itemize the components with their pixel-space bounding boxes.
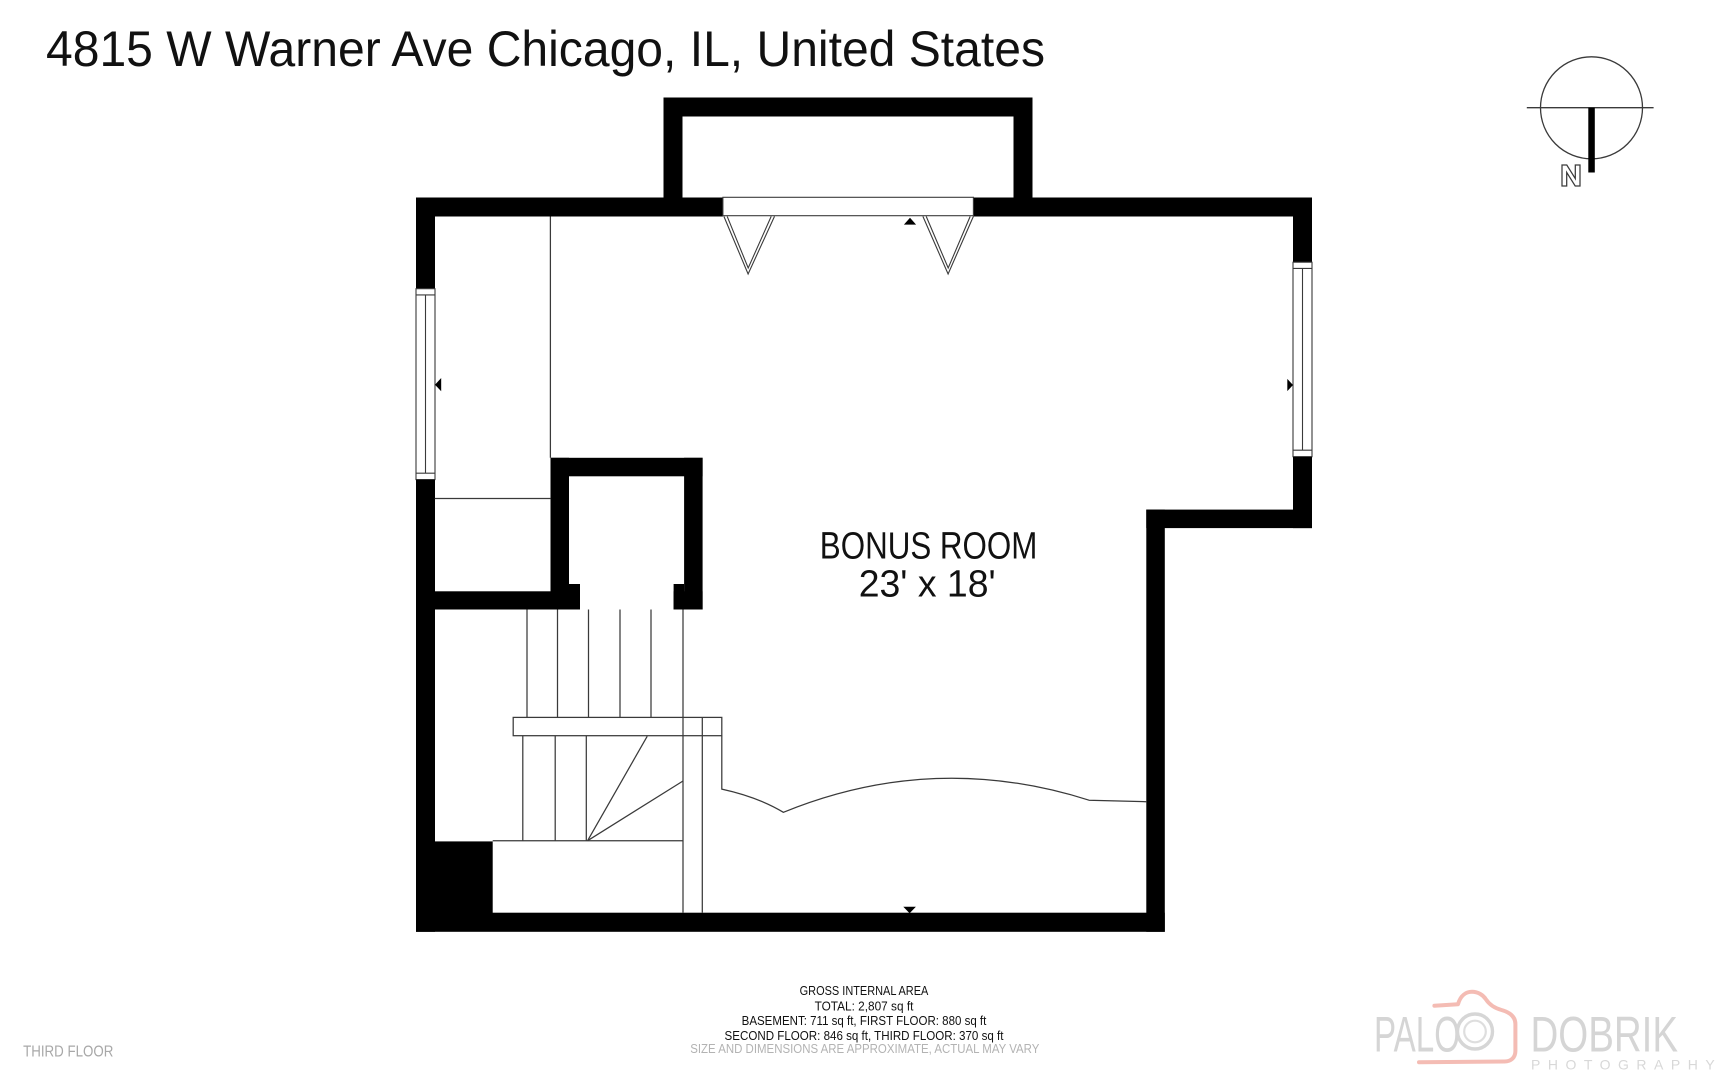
svg-text:PALO: PALO xyxy=(1374,1006,1460,1062)
svg-text:BASEMENT: 711 sq ft, FIRST FLO: BASEMENT: 711 sq ft, FIRST FLOOR: 880 sq… xyxy=(742,1013,987,1028)
svg-text:BONUS ROOM: BONUS ROOM xyxy=(820,525,1038,567)
svg-text:TOTAL: 2,807 sq ft: TOTAL: 2,807 sq ft xyxy=(815,998,914,1013)
svg-text:DOBRIK: DOBRIK xyxy=(1531,1006,1679,1062)
svg-text:23' x 18': 23' x 18' xyxy=(859,563,996,605)
svg-text:4815 W Warner Ave Chicago, IL,: 4815 W Warner Ave Chicago, IL, United St… xyxy=(46,21,1045,77)
svg-text:GROSS INTERNAL AREA: GROSS INTERNAL AREA xyxy=(800,983,929,998)
svg-text:PHOTOGRAPHY: PHOTOGRAPHY xyxy=(1531,1057,1722,1073)
svg-text:THIRD FLOOR: THIRD FLOOR xyxy=(23,1044,113,1061)
svg-text:SIZE AND DIMENSIONS ARE APPROX: SIZE AND DIMENSIONS ARE APPROXIMATE, ACT… xyxy=(690,1041,1039,1056)
